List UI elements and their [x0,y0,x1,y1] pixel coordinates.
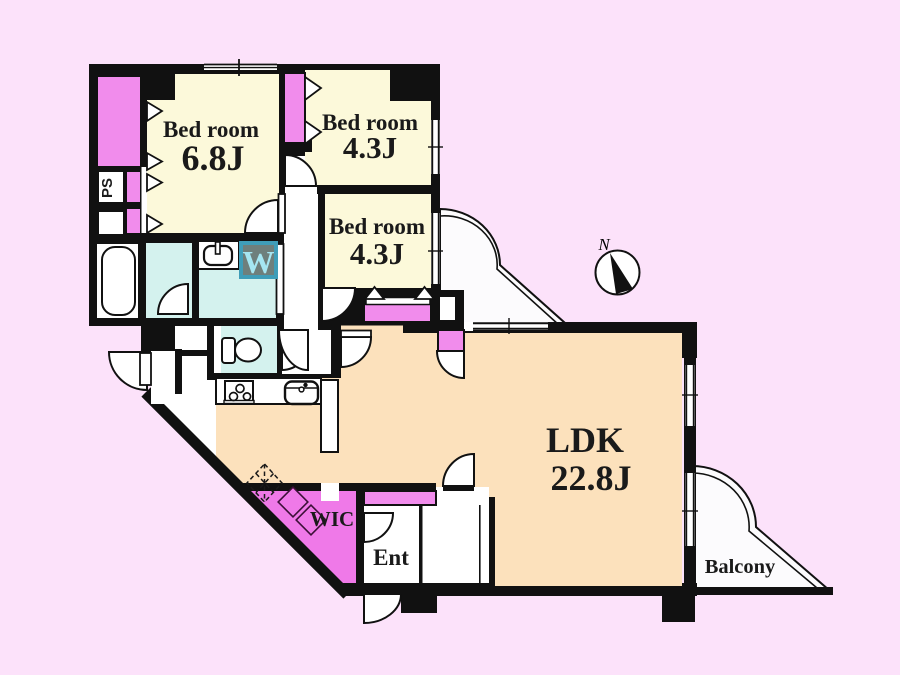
svg-text:4.3J: 4.3J [343,130,397,165]
svg-text:N: N [597,235,611,254]
svg-text:W: W [243,244,275,280]
svg-text:Balcony: Balcony [705,556,776,578]
svg-text:Ent: Ent [373,545,409,570]
svg-text:22.8J: 22.8J [551,458,632,498]
svg-text:6.8J: 6.8J [182,138,245,178]
svg-text:WIC: WIC [310,507,354,531]
svg-text:4.3J: 4.3J [350,236,404,271]
svg-text:PS: PS [99,178,116,198]
svg-text:LDK: LDK [546,420,624,460]
